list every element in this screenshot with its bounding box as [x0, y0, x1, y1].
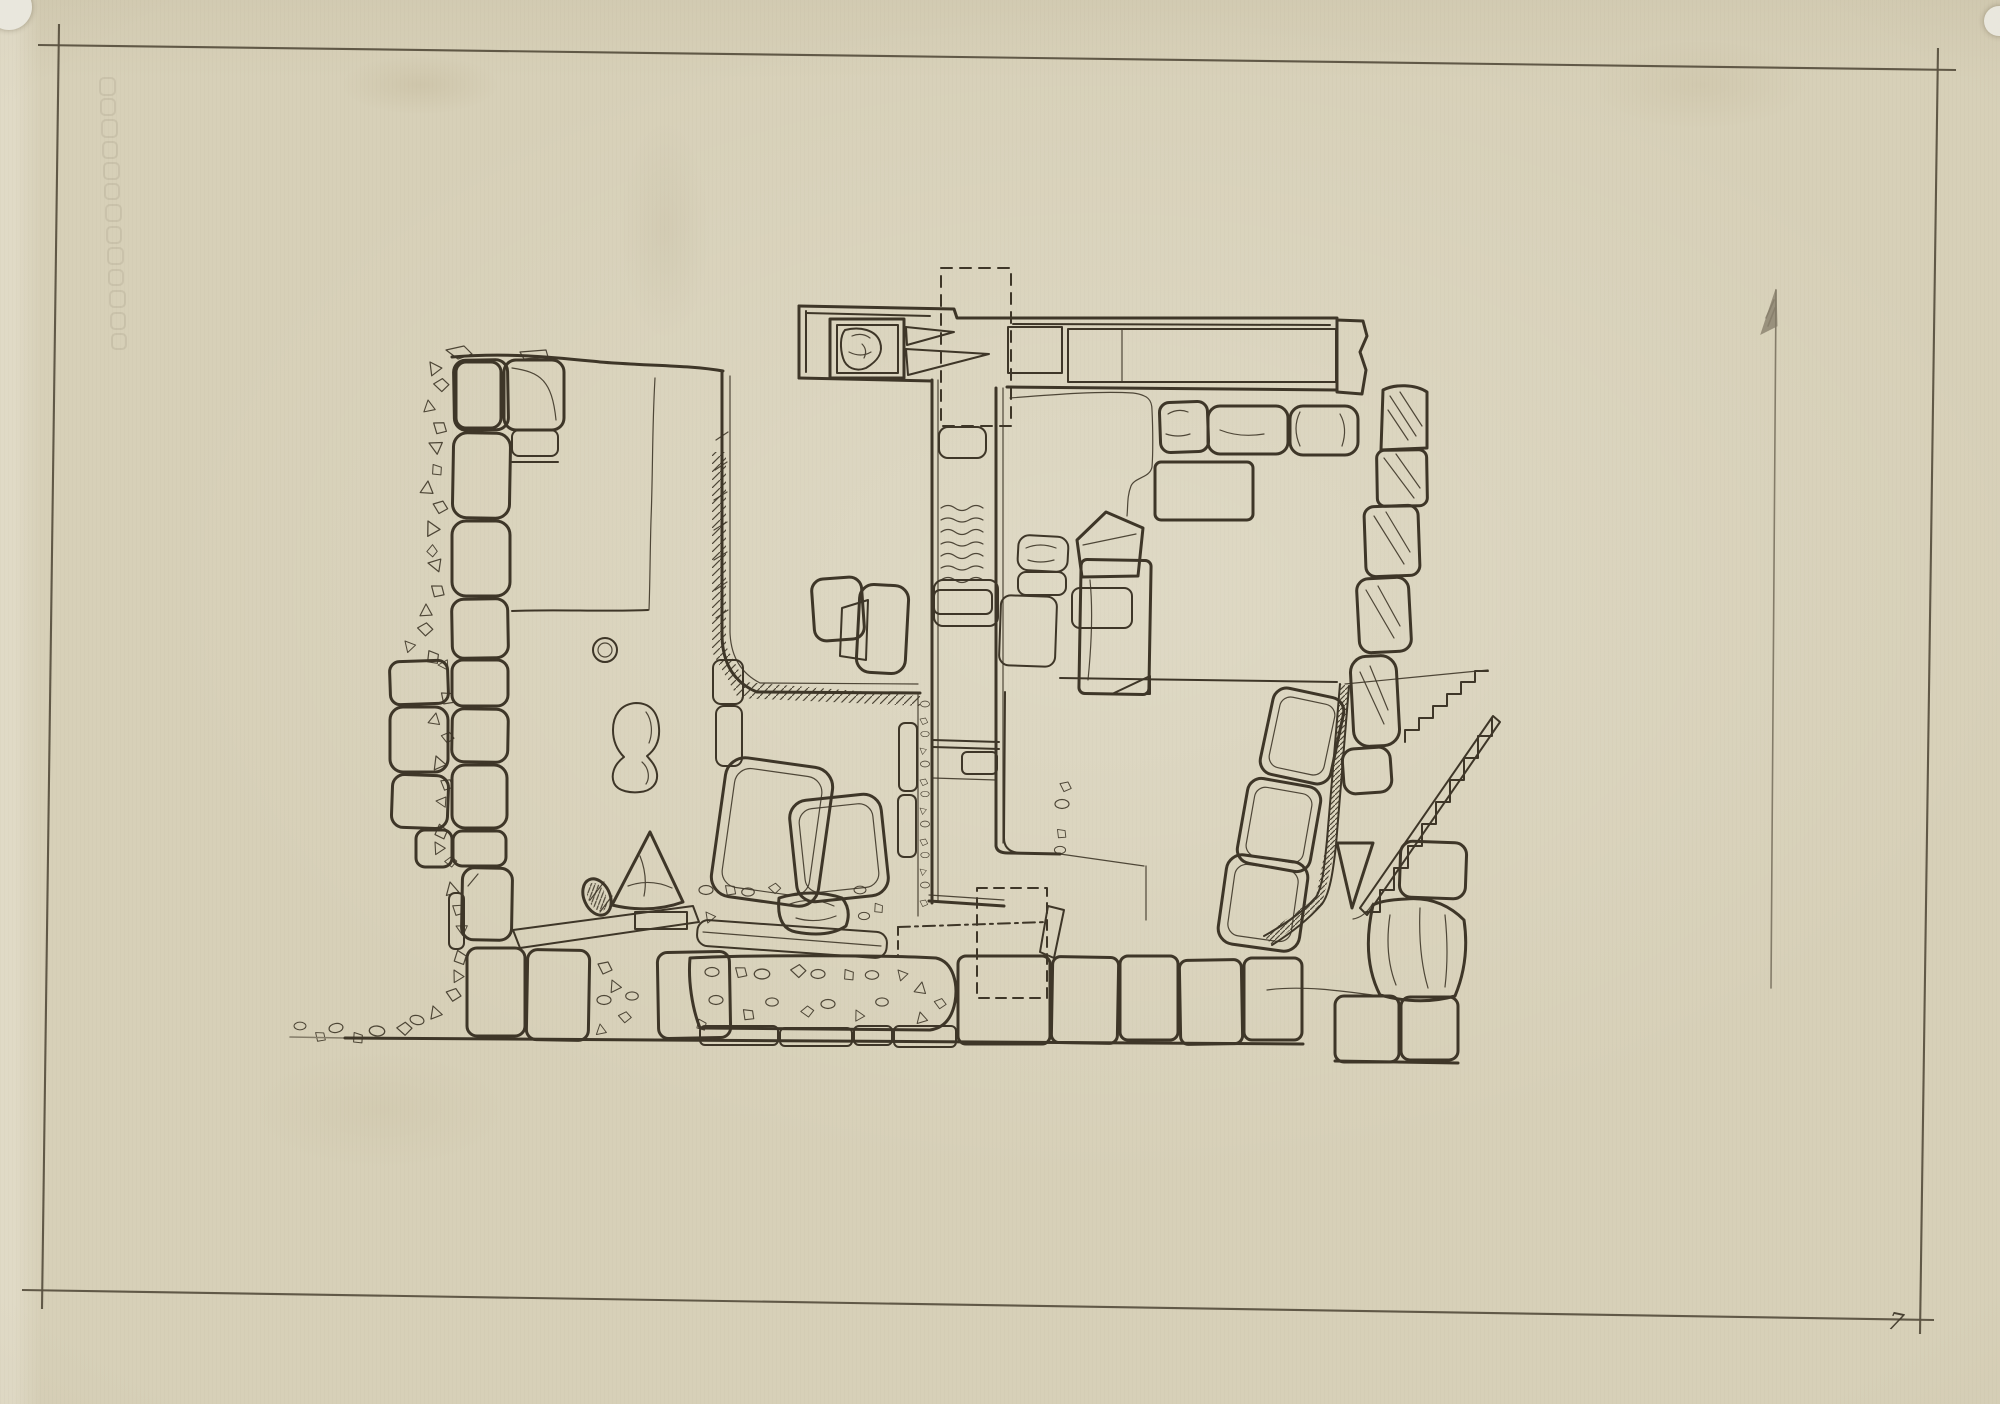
excavation-edge-hatched [712, 372, 920, 706]
drain-channel-hatched [1264, 684, 1349, 945]
dashed-projection-north [941, 268, 1011, 426]
embossed-watermark [100, 78, 126, 349]
plan-drawing [0, 0, 2000, 1404]
north-wall-band [799, 306, 1367, 394]
east-room [934, 392, 1358, 920]
west-room-interior [512, 378, 659, 792]
staircase [1345, 670, 1500, 919]
east-wall [1342, 386, 1428, 795]
west-wall [389, 346, 723, 949]
central-channel [898, 380, 1060, 916]
scanned-plan-sheet: 7 [0, 0, 2000, 1404]
west-rubble [294, 362, 469, 1046]
north-arrow-icon [1761, 289, 1777, 988]
center-stone-pile [513, 576, 1064, 958]
border-frame [22, 24, 1956, 1334]
